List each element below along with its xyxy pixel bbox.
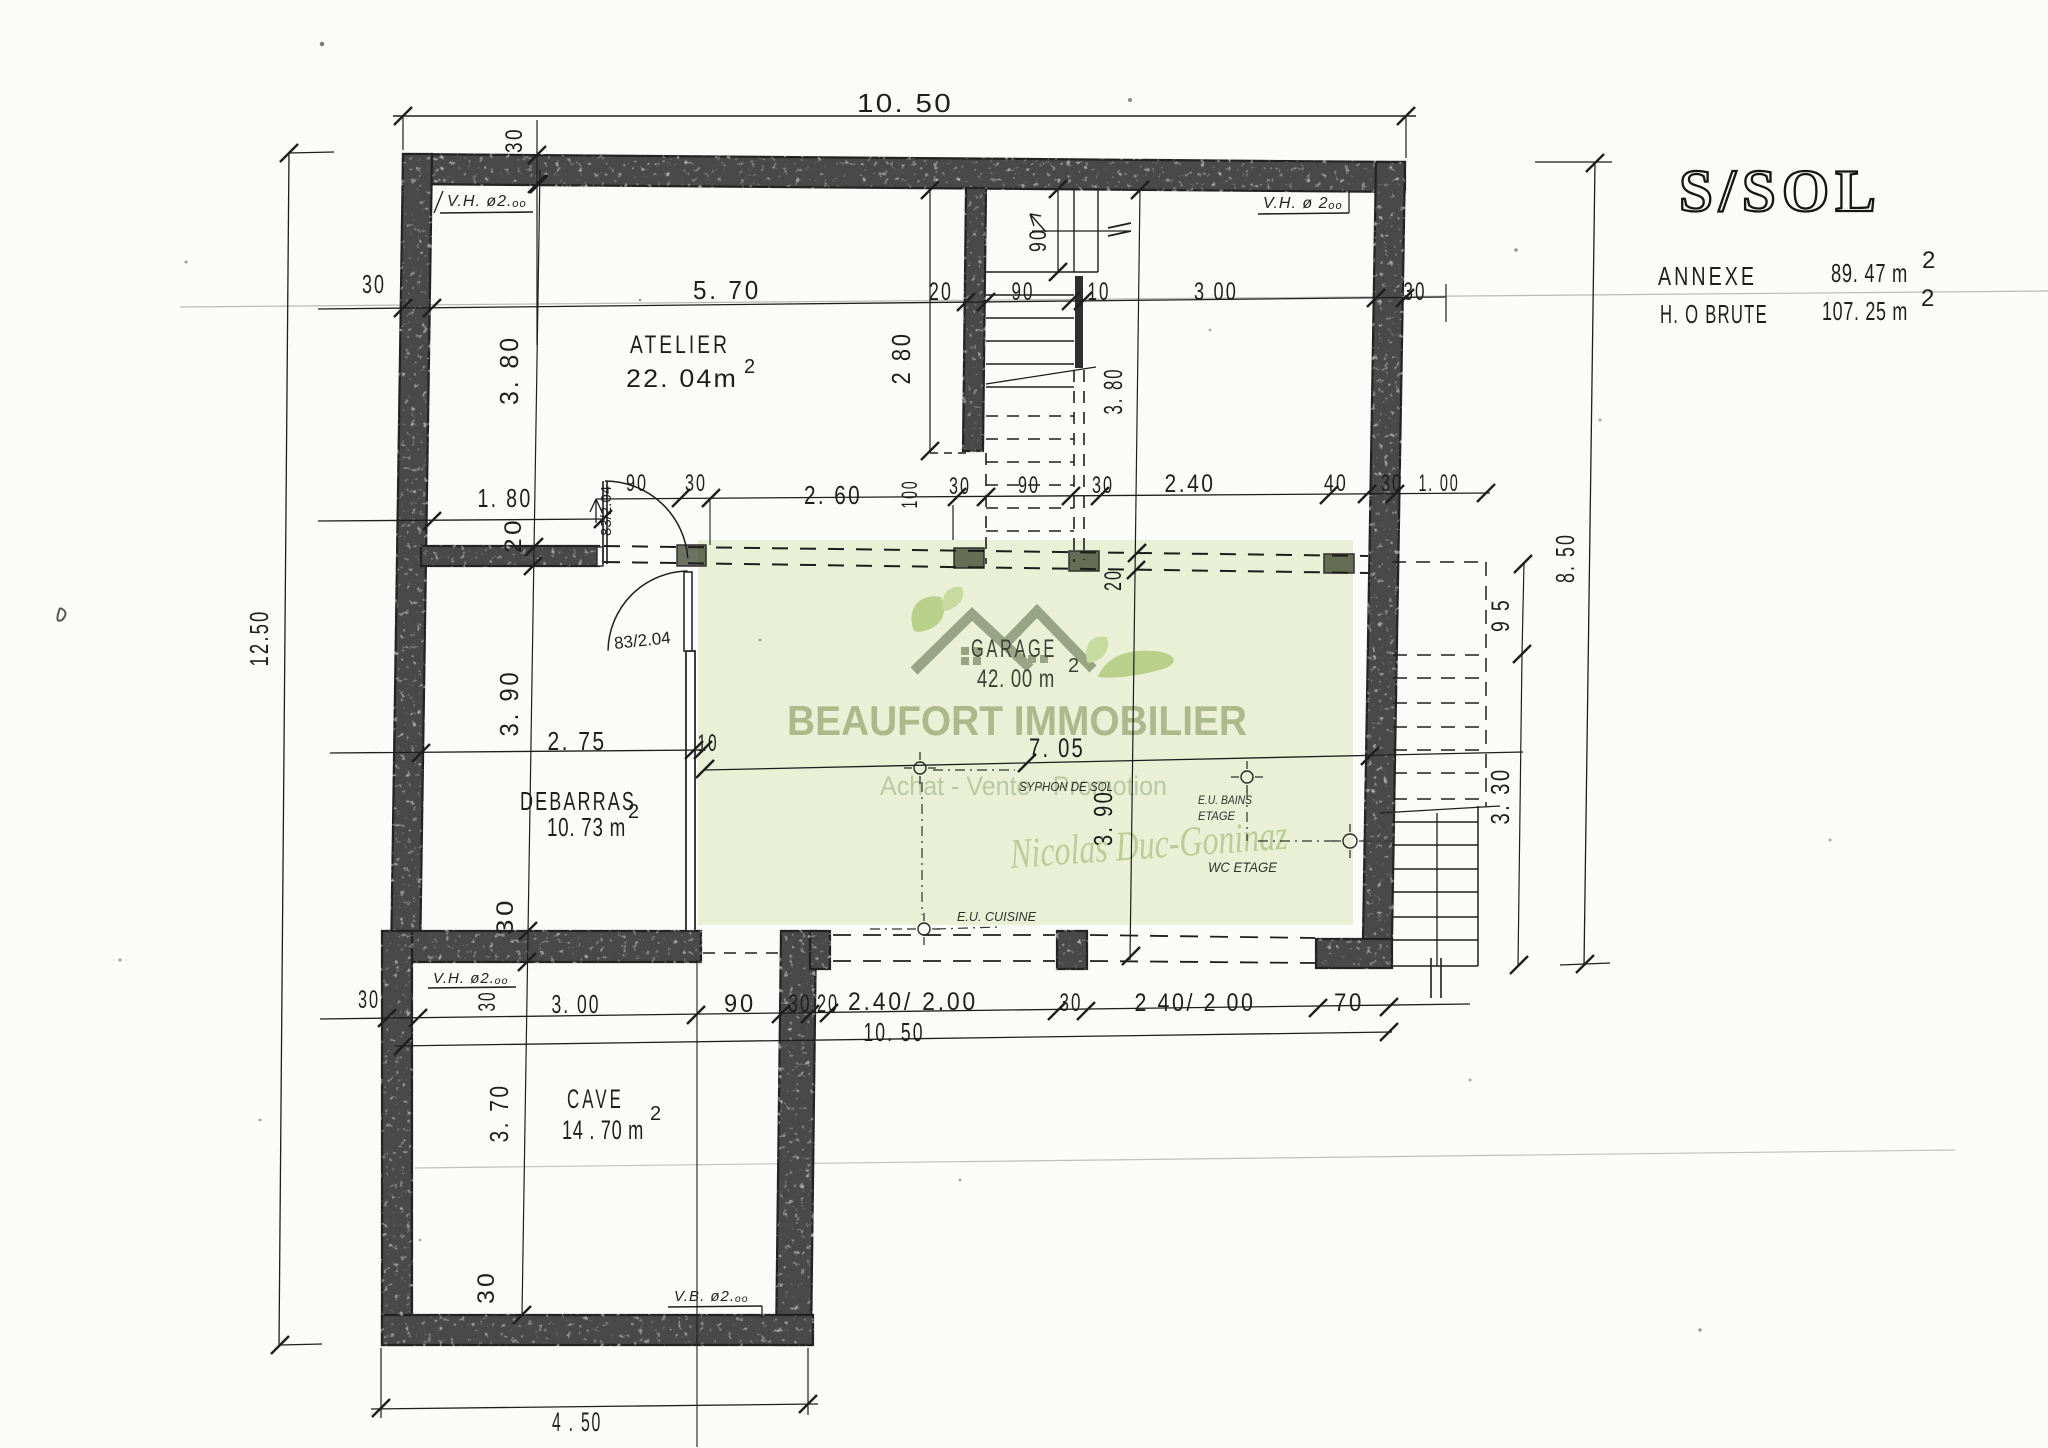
svg-text:22. 04m: 22. 04m xyxy=(626,365,738,393)
svg-text:2: 2 xyxy=(628,801,642,823)
svg-text:ATELIER: ATELIER xyxy=(630,331,730,359)
svg-text:30: 30 xyxy=(474,991,501,1012)
svg-text:30: 30 xyxy=(1404,278,1427,306)
svg-text:CAVE: CAVE xyxy=(567,1084,624,1114)
svg-text:2: 2 xyxy=(744,356,755,378)
svg-text:10: 10 xyxy=(1088,278,1111,306)
svg-text:90: 90 xyxy=(1025,228,1052,252)
svg-text:20: 20 xyxy=(817,990,839,1018)
svg-text:14 . 70 m: 14 . 70 m xyxy=(562,1115,644,1145)
svg-text:100: 100 xyxy=(897,480,922,509)
svg-text:10. 73 m: 10. 73 m xyxy=(547,812,626,842)
svg-text:3. 30: 3. 30 xyxy=(1485,768,1515,825)
svg-text:3. 90: 3. 90 xyxy=(494,670,524,737)
svg-text:4 . 50: 4 . 50 xyxy=(552,1407,602,1437)
svg-text:1. 00: 1. 00 xyxy=(1419,470,1460,497)
svg-text:30: 30 xyxy=(362,269,386,299)
svg-text:90: 90 xyxy=(1018,472,1040,499)
svg-text:30: 30 xyxy=(501,127,528,153)
svg-text:2: 2 xyxy=(1921,285,1937,312)
svg-text:2.40: 2.40 xyxy=(1165,470,1216,498)
svg-text:30: 30 xyxy=(358,986,380,1014)
svg-text:107. 25 m: 107. 25 m xyxy=(1822,296,1908,326)
svg-text:8. 50: 8. 50 xyxy=(1550,533,1580,583)
svg-text:42. 00 m: 42. 00 m xyxy=(977,665,1055,693)
svg-text:90: 90 xyxy=(1012,278,1035,306)
svg-text:2. 75: 2. 75 xyxy=(548,726,607,756)
svg-text:2: 2 xyxy=(1068,655,1082,677)
svg-text:20: 20 xyxy=(500,517,527,553)
svg-text:V.H. ø 2ₒₒ: V.H. ø 2ₒₒ xyxy=(1263,195,1343,212)
svg-text:3 00: 3 00 xyxy=(1194,278,1238,306)
svg-text:12.50: 12.50 xyxy=(244,610,274,667)
svg-text:30: 30 xyxy=(1092,472,1114,499)
svg-text:30: 30 xyxy=(473,1270,500,1304)
svg-text:3. 00: 3. 00 xyxy=(552,989,601,1019)
svg-text:2 80: 2 80 xyxy=(886,332,916,385)
svg-text:89. 47 m: 89. 47 m xyxy=(1831,258,1908,288)
svg-text:S/SOL: S/SOL xyxy=(1679,158,1882,224)
svg-text:30: 30 xyxy=(492,897,519,935)
svg-text:BEAUFORT IMMOBILIER: BEAUFORT IMMOBILIER xyxy=(787,697,1247,744)
svg-text:40: 40 xyxy=(1324,470,1348,497)
svg-text:9 5: 9 5 xyxy=(1487,598,1515,632)
svg-text:30: 30 xyxy=(1381,470,1403,497)
svg-text:ANNEXE: ANNEXE xyxy=(1658,261,1757,291)
svg-text:30: 30 xyxy=(1060,989,1083,1017)
svg-text:3. 70: 3. 70 xyxy=(484,1084,514,1143)
svg-text:V.B. ø2.ₒₒ: V.B. ø2.ₒₒ xyxy=(674,1288,749,1305)
svg-text:90: 90 xyxy=(626,470,648,497)
svg-text:10. 50: 10. 50 xyxy=(857,88,953,118)
svg-text:20: 20 xyxy=(929,278,953,306)
svg-text:5. 70: 5. 70 xyxy=(693,275,761,305)
svg-text:2: 2 xyxy=(650,1103,664,1125)
svg-text:2. 60: 2. 60 xyxy=(804,480,862,510)
svg-text:30: 30 xyxy=(789,990,812,1018)
svg-text:1. 80: 1. 80 xyxy=(478,483,533,513)
svg-text:10. 50: 10. 50 xyxy=(864,1017,925,1047)
svg-text:3. 80: 3. 80 xyxy=(1098,368,1128,415)
svg-text:GARAGE: GARAGE xyxy=(971,635,1057,663)
svg-text:H. O BRUTE: H. O BRUTE xyxy=(1660,299,1768,329)
svg-text:90: 90 xyxy=(724,990,756,1018)
svg-text:V.H. ø2.ₒₒ: V.H. ø2.ₒₒ xyxy=(433,970,509,987)
svg-text:30: 30 xyxy=(949,473,971,500)
svg-text:3. 80: 3. 80 xyxy=(494,335,524,405)
svg-text:2 40/ 2 00: 2 40/ 2 00 xyxy=(1135,989,1256,1017)
svg-text:V.H. ø2.ₒₒ: V.H. ø2.ₒₒ xyxy=(447,193,527,210)
svg-text:30: 30 xyxy=(685,470,707,497)
svg-text:2.40/ 2.00: 2.40/ 2.00 xyxy=(848,988,978,1016)
svg-text:70: 70 xyxy=(1334,989,1364,1017)
svg-text:Achat - Vente - Promotion: Achat - Vente - Promotion xyxy=(880,771,1167,801)
svg-text:2: 2 xyxy=(1922,247,1938,274)
